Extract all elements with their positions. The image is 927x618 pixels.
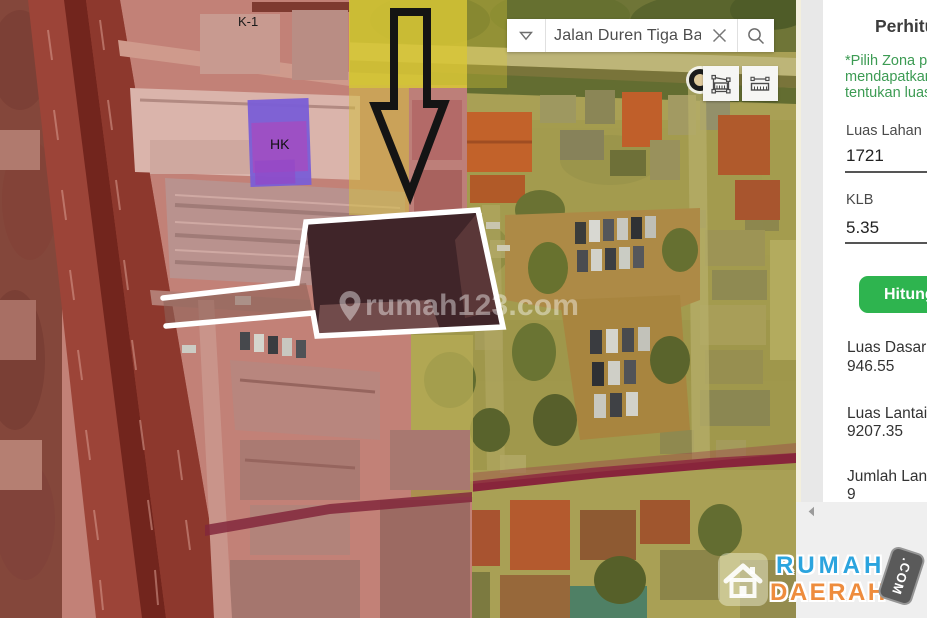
- svg-text:HK: HK: [270, 136, 290, 152]
- svg-text:K-1: K-1: [238, 14, 258, 29]
- svg-text:rumah123.com: rumah123.com: [365, 289, 579, 322]
